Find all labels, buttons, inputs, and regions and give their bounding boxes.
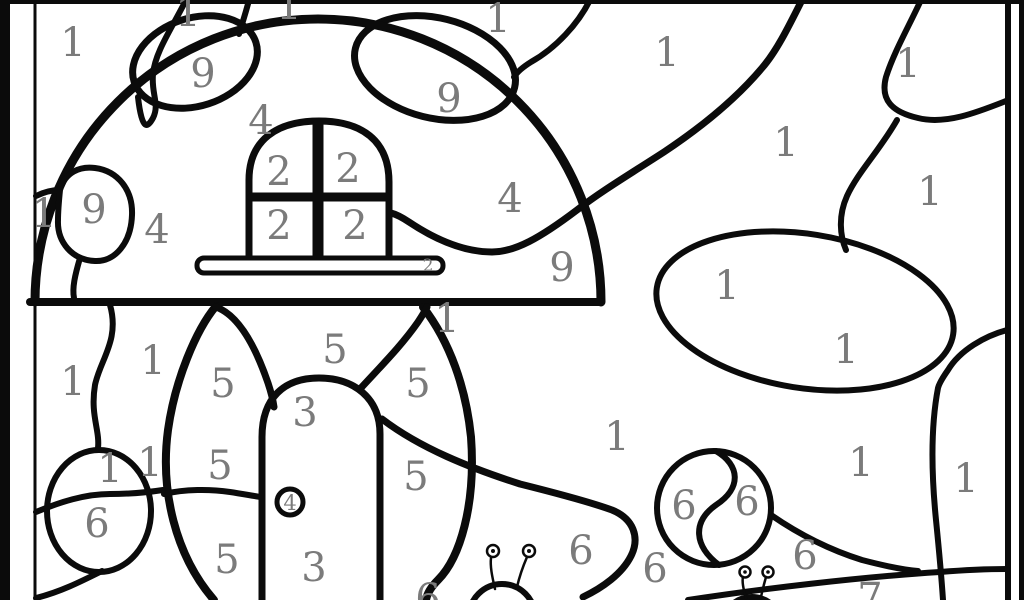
region-number: 9 [190,51,215,97]
region-number: 1 [917,169,942,215]
grass-line-left-lower [36,571,102,598]
region-number: 2 [266,149,291,195]
bush-split-curve [699,451,735,565]
butterfly-left-antenna [517,557,527,587]
region-number: 1 [60,20,85,66]
region-number: 6 [415,576,440,600]
region-number: 4 [283,491,296,515]
region-number: 1 [953,456,978,502]
region-number: 2 [335,146,360,192]
region-number: 1 [140,338,165,384]
sky-divider-line [514,0,590,77]
region-number: 1 [137,440,162,486]
region-number: 6 [671,483,696,529]
coloring-page: 1111111111199994442222255555533111116111… [0,0,1024,600]
window-sill [197,258,443,273]
region-number: 4 [248,98,273,144]
region-number: 5 [405,361,430,407]
ground-line [688,569,1007,600]
region-number: 5 [207,443,232,489]
butterfly-right-antenna-curl-dot [743,570,747,574]
mound-outline [382,419,635,597]
butterfly-left-head [469,584,535,600]
region-number: 1 [175,0,200,36]
color-by-number-drawing: 1111111111199994442222255555533111116111… [0,0,1024,600]
region-number: 2 [266,203,291,249]
region-number: 5 [214,537,239,583]
region-number: 4 [497,176,522,222]
region-number: 1 [833,327,858,373]
region-number: 4 [144,207,169,253]
region-number: 1 [97,446,122,492]
sky-divider-line [841,120,897,250]
region-number: 1 [604,414,629,460]
region-number: 1 [773,120,798,166]
region-number: 6 [568,528,593,574]
page-border-right-outer [1019,0,1024,600]
region-number: 5 [403,454,428,500]
region-number: 2 [423,256,434,276]
butterfly-left-antenna-curl-dot [491,549,495,553]
region-number: 3 [301,545,326,591]
butterfly-left-antenna-curl-dot [527,549,531,553]
region-number: 7 [857,575,882,600]
region-number: 6 [734,479,759,525]
region-number: 3 [292,390,317,436]
region-number: 5 [210,361,235,407]
region-number: 1 [848,440,873,486]
region-number: 6 [792,533,817,579]
region-number: 1 [60,359,85,405]
region-number: 1 [714,263,739,309]
region-number: 1 [434,296,459,342]
sky-divider-line [94,305,113,448]
region-number: 5 [322,327,347,373]
region-number: 2 [342,203,367,249]
beehive-band-line [164,490,261,497]
region-number: 1 [895,41,920,87]
sky-divider-line [391,0,802,252]
region-number: 1 [485,0,510,42]
butterfly-right-antenna-curl-dot [766,570,770,574]
region-number: 1 [31,191,56,237]
region-number: 1 [654,30,679,76]
page-border-left-outer [0,0,10,600]
region-number: 1 [276,0,301,29]
region-number: 9 [81,187,106,233]
region-number: 9 [436,76,461,122]
cloud-large [645,211,965,410]
region-number: 9 [549,245,574,291]
region-number: 6 [84,501,109,547]
blob-region-tail [73,258,80,298]
region-number: 6 [642,546,667,592]
